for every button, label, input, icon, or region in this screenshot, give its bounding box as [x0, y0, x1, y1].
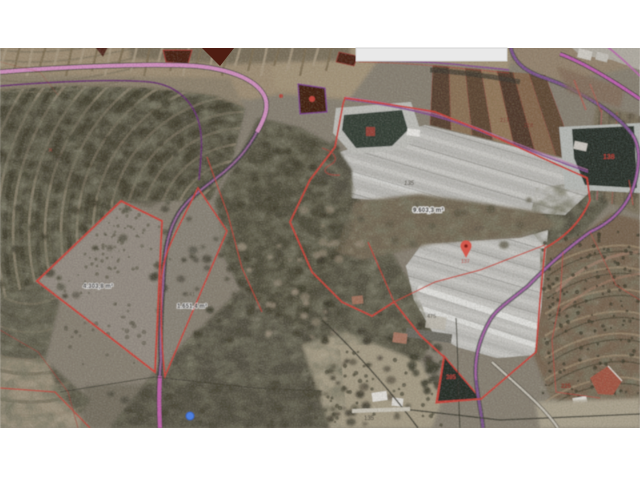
svg-text:141: 141	[186, 292, 195, 298]
svg-text:225: 225	[561, 384, 572, 390]
svg-text:135: 135	[364, 416, 375, 422]
svg-text:1.651,4 m²: 1.651,4 m²	[177, 303, 207, 310]
svg-text:475: 475	[427, 314, 436, 320]
svg-text:135: 135	[404, 181, 415, 187]
svg-text:9.603,3 m²: 9.603,3 m²	[413, 207, 443, 214]
svg-text:477: 477	[474, 227, 485, 233]
svg-text:137: 137	[461, 259, 470, 265]
svg-text:27: 27	[465, 376, 471, 382]
svg-text:4.303,8 m²: 4.303,8 m²	[83, 283, 113, 290]
